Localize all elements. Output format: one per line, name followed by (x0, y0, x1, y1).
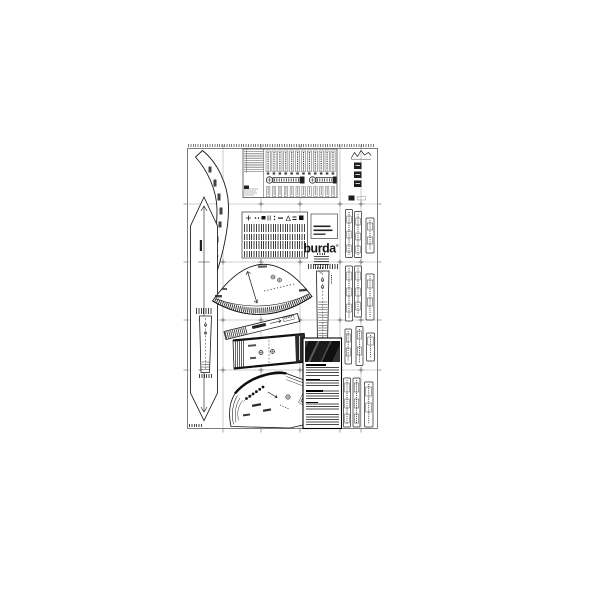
placket-piece (317, 271, 332, 345)
instruction-card-title (306, 364, 326, 366)
bottom-left-micro-text (189, 424, 202, 427)
pattern-sheet: burda® (0, 0, 600, 600)
placket-header-text (308, 264, 339, 270)
tape-measure-diagram (266, 177, 336, 184)
section-header-bar (306, 390, 323, 392)
legend-text-block (244, 241, 305, 249)
trapezoid-band-piece (233, 334, 306, 369)
legend-text-block (244, 224, 305, 232)
legend-text-block (244, 251, 305, 258)
sheet-linework (0, 0, 600, 600)
section-header-bar (306, 379, 320, 381)
section-header-bar (306, 402, 318, 404)
band-footer-text (199, 374, 212, 378)
logo-sub-text (317, 253, 326, 255)
paragraph-gap (306, 411, 339, 413)
info-box (311, 214, 338, 239)
strip-group-row4 (344, 378, 374, 427)
band-header-text (196, 308, 213, 314)
waistband-piece (200, 316, 212, 373)
instruction-card-photo (305, 341, 340, 362)
strip-pieces (344, 210, 375, 428)
legend-text-block (244, 234, 305, 240)
fabric-layout-mini-diagrams (349, 151, 372, 201)
registered-mark: ® (336, 243, 339, 248)
top-margin-micro-text (188, 144, 374, 148)
size-chart-table (243, 149, 337, 198)
flounce-fan-piece (213, 264, 313, 314)
